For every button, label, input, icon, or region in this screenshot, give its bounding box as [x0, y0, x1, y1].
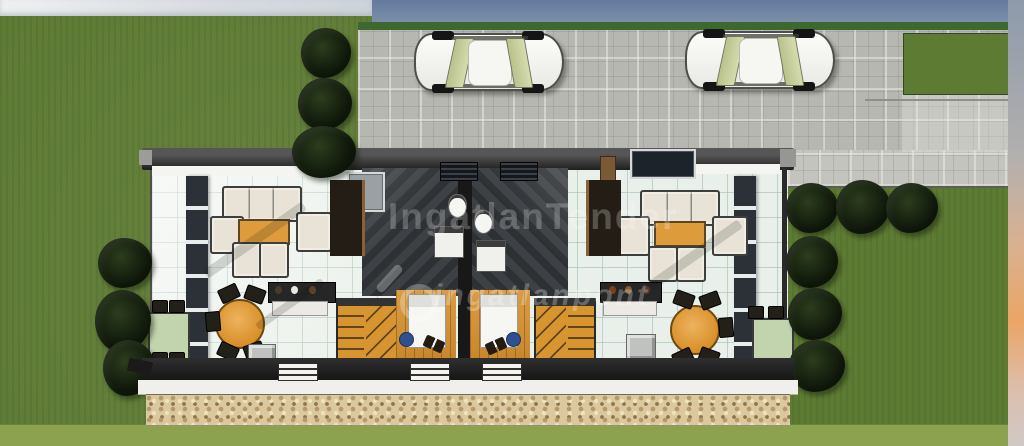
bag-left-unit [399, 332, 414, 347]
watermark-secondary: ingatlanpont [434, 279, 650, 313]
pavement-joint-line [865, 99, 1008, 101]
sky-clouds [0, 0, 372, 16]
armchair-left-unit-2 [296, 212, 332, 252]
kitchen-item [275, 286, 282, 294]
bag-right-unit [506, 332, 521, 347]
dining-chair [718, 317, 735, 338]
entry-steps-right-unit [482, 363, 522, 381]
sink-unit-right-unit [626, 334, 656, 360]
parked-car-right [683, 28, 837, 92]
dining-chair [205, 311, 222, 332]
dining-table-right-unit [670, 305, 720, 355]
roof-cap-right [780, 149, 796, 167]
car-roof [739, 38, 783, 84]
parked-car-left [412, 30, 566, 94]
washbasin-right-unit [476, 240, 506, 272]
car-roof [468, 40, 512, 86]
entry-steps-terrace [278, 363, 318, 381]
entry-steps-left-unit [410, 363, 450, 381]
car-wheel [703, 29, 725, 38]
patio-chair [748, 306, 764, 319]
plinth-ledge [138, 380, 798, 395]
front-wall [142, 358, 794, 382]
pavement-light-patch [902, 94, 1008, 152]
pavement-lower-right [788, 150, 1008, 188]
car-body [414, 33, 564, 91]
skylight-panel [630, 149, 696, 179]
patio-chair [169, 300, 185, 313]
lawn-front-strip [0, 424, 1008, 446]
sunset-sky-edge [1008, 0, 1024, 446]
grass-patch-top-right [903, 33, 1009, 95]
gravel-path [146, 394, 790, 426]
watermark-primary: IngatlanTender [388, 196, 678, 238]
floorplan-render-scene: IngatlanTender ingatlanpont [0, 0, 1024, 446]
car-wheel [432, 31, 454, 40]
magnifier-icon [400, 284, 438, 322]
wardrobe-left-unit [330, 180, 365, 256]
chair-left-unit-2 [259, 242, 289, 278]
roof-vent-left [440, 162, 478, 181]
roof-cap-left [139, 150, 152, 165]
car-body [685, 31, 835, 89]
patio-chair [768, 306, 784, 319]
patio-chair [152, 300, 168, 313]
roof-vent-right [500, 162, 538, 181]
